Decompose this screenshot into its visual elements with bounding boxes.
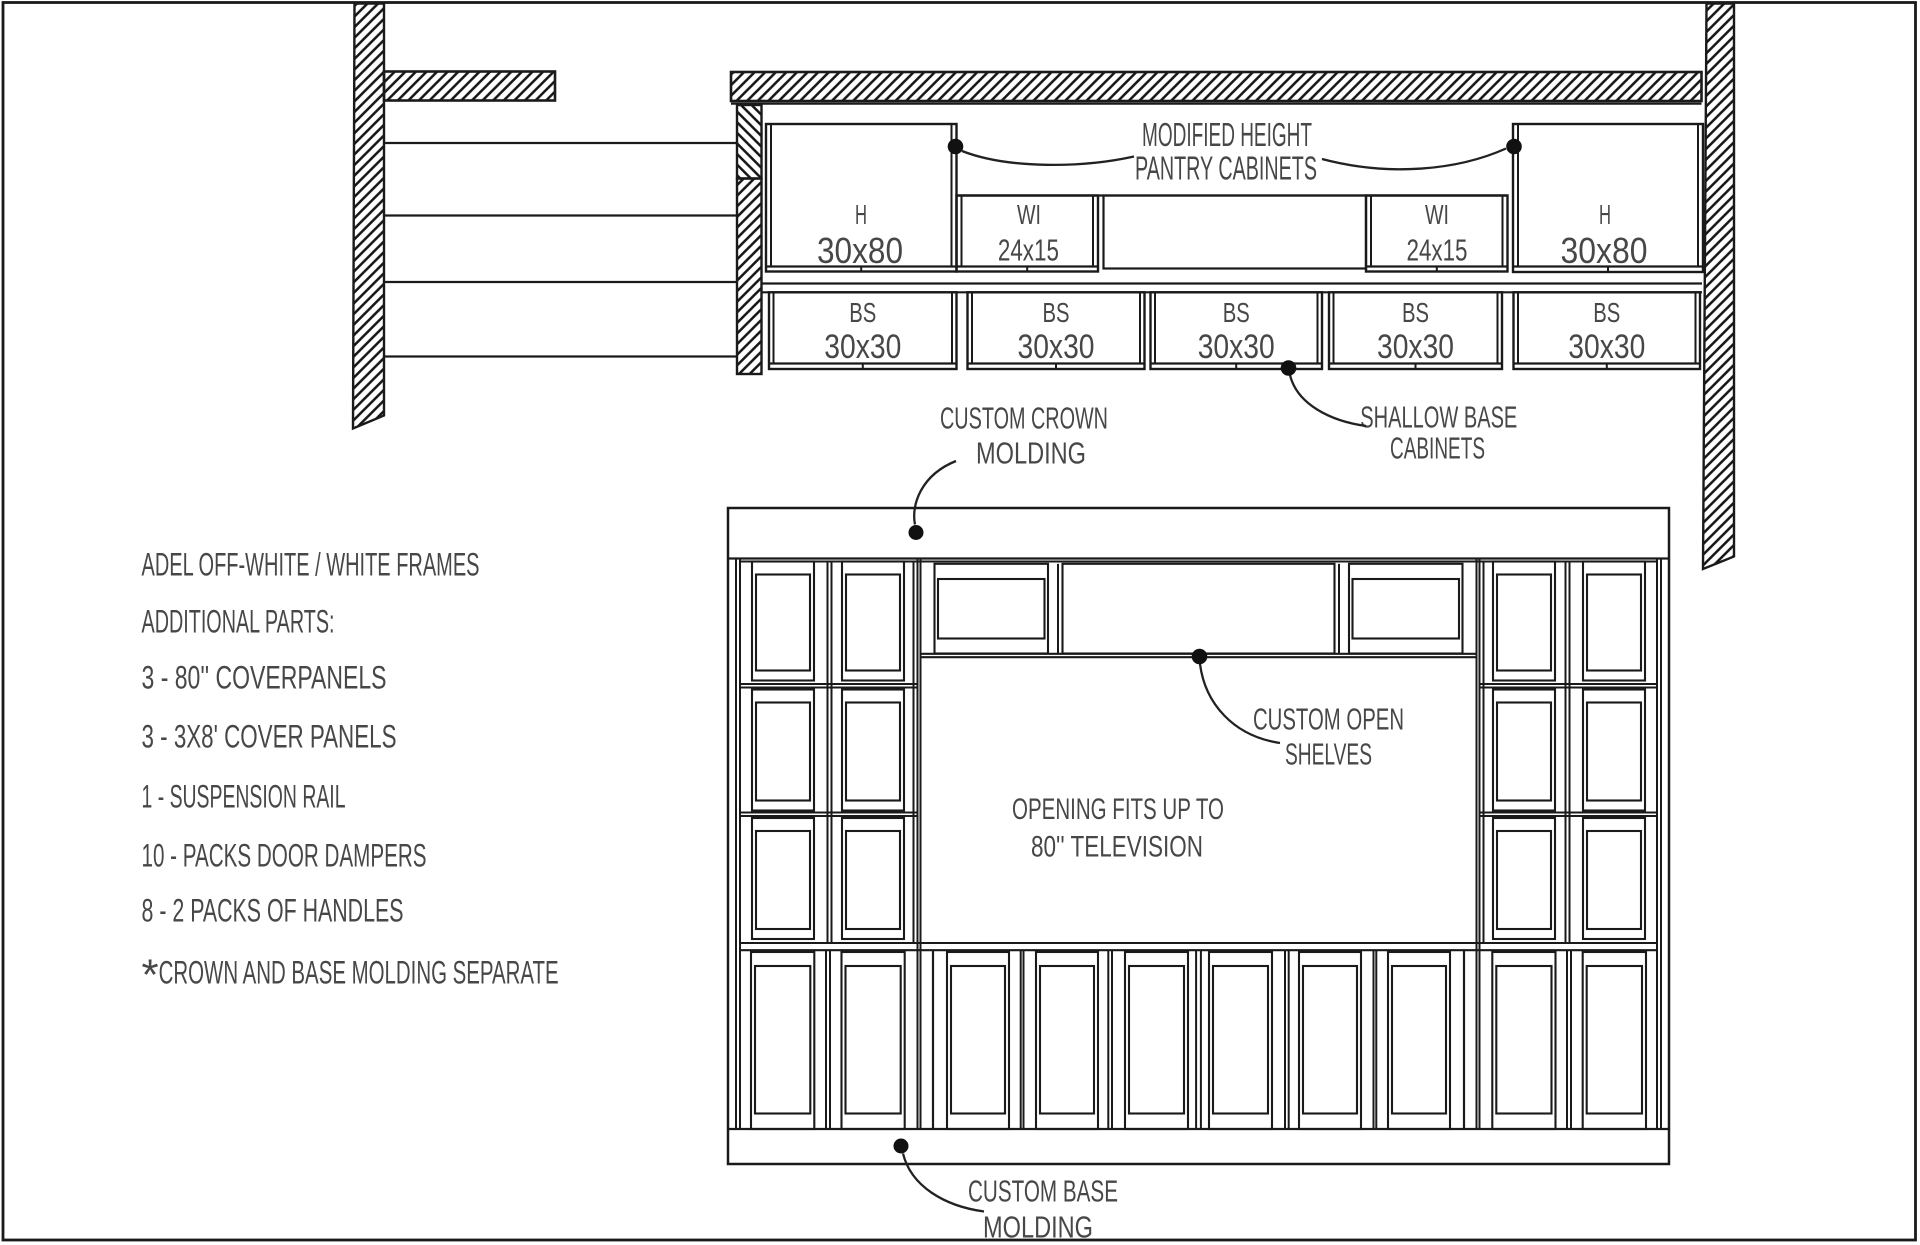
svg-text:30x30: 30x30 bbox=[1018, 328, 1095, 366]
svg-text:PANTRY CABINETS: PANTRY CABINETS bbox=[1135, 150, 1317, 187]
svg-text:SHELVES: SHELVES bbox=[1285, 736, 1372, 771]
svg-text:8 - 2 PACKS OF HANDLES: 8 - 2 PACKS OF HANDLES bbox=[142, 893, 404, 929]
svg-text:CUSTOM BASE: CUSTOM BASE bbox=[968, 1173, 1118, 1208]
svg-text:BS: BS bbox=[849, 297, 876, 328]
svg-text:BS: BS bbox=[1223, 297, 1250, 328]
svg-text:10 - PACKS DOOR DAMPERS: 10 - PACKS DOOR DAMPERS bbox=[142, 838, 427, 874]
svg-text:H: H bbox=[1599, 199, 1611, 230]
svg-text:MOLDING: MOLDING bbox=[976, 435, 1086, 470]
svg-text:30x30: 30x30 bbox=[1198, 328, 1275, 366]
svg-text:H: H bbox=[855, 199, 867, 230]
svg-text:SHALLOW BASE: SHALLOW BASE bbox=[1360, 399, 1517, 434]
svg-text:CABINETS: CABINETS bbox=[1390, 430, 1485, 465]
svg-text:BS: BS bbox=[1593, 297, 1620, 328]
svg-text:30x80: 30x80 bbox=[1561, 230, 1648, 271]
svg-text:MOLDING: MOLDING bbox=[983, 1209, 1093, 1244]
svg-text:30x30: 30x30 bbox=[824, 328, 901, 366]
svg-text:30x30: 30x30 bbox=[1568, 328, 1645, 366]
svg-text:WI: WI bbox=[1425, 199, 1449, 230]
svg-text:3 - 80'' COVERPANELS: 3 - 80'' COVERPANELS bbox=[142, 660, 387, 696]
svg-text:80'' TELEVISION: 80'' TELEVISION bbox=[1031, 831, 1203, 864]
svg-text:BS: BS bbox=[1043, 297, 1070, 328]
svg-text:BS: BS bbox=[1402, 297, 1429, 328]
svg-text:30x30: 30x30 bbox=[1377, 328, 1454, 366]
svg-text:WI: WI bbox=[1017, 199, 1041, 230]
svg-text:24x15: 24x15 bbox=[998, 232, 1059, 267]
svg-text:CUSTOM OPEN: CUSTOM OPEN bbox=[1253, 701, 1404, 736]
svg-text:3 - 3X8' COVER PANELS: 3 - 3X8' COVER PANELS bbox=[142, 719, 397, 755]
svg-text:OPENING FITS UP TO: OPENING FITS UP TO bbox=[1012, 793, 1224, 826]
svg-text:30x80: 30x80 bbox=[817, 230, 903, 271]
svg-text:CUSTOM CROWN: CUSTOM CROWN bbox=[940, 400, 1108, 435]
svg-text:ADDITIONAL PARTS:: ADDITIONAL PARTS: bbox=[142, 603, 335, 639]
svg-text:ADEL OFF-WHITE / WHITE FRAMES: ADEL OFF-WHITE / WHITE FRAMES bbox=[142, 547, 480, 583]
svg-text:1 - SUSPENSION RAIL: 1 - SUSPENSION RAIL bbox=[142, 779, 346, 815]
svg-text:MODIFIED HEIGHT: MODIFIED HEIGHT bbox=[1142, 116, 1312, 153]
svg-text:24x15: 24x15 bbox=[1407, 232, 1468, 267]
